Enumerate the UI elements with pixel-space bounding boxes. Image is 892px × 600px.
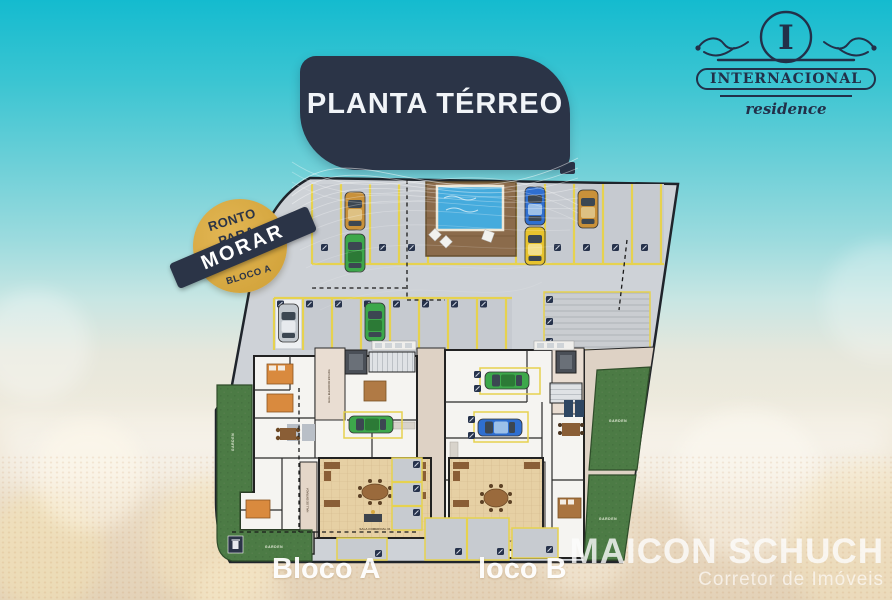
- bed: [364, 381, 386, 401]
- marketing-poster: HALL ELEVADOR ESCADA HALL DE ENTRADA SAL…: [0, 0, 892, 600]
- car-blue: [525, 187, 545, 225]
- bed: [246, 500, 270, 518]
- logo-tagline: residence: [688, 100, 884, 118]
- hall-core-label: HALL ELEVADOR ESCADA: [327, 369, 331, 403]
- brand-logo: I INTERNACIONAL residence: [688, 8, 884, 118]
- car-silver: [279, 304, 299, 342]
- stairs: [369, 352, 415, 372]
- garden-label: GARDEN: [265, 545, 283, 549]
- car-gold: [578, 190, 598, 228]
- car-green: [365, 303, 385, 341]
- garden-label: GARDEN: [609, 419, 627, 423]
- block-b-caption: loco B: [478, 553, 567, 586]
- block-a-caption: Bloco A: [272, 553, 380, 586]
- bed: [564, 400, 573, 417]
- car-yellow: [525, 227, 545, 265]
- car-gold: [345, 192, 365, 230]
- logo-divider: [720, 95, 852, 97]
- bed: [575, 400, 584, 417]
- commercial-a-label: SALA COMERCIAL 01: [359, 527, 391, 531]
- parking-row-middle: [274, 292, 650, 350]
- garden-label: GARDEN: [231, 433, 235, 451]
- logo-monogram: I: [778, 18, 794, 58]
- car-green: [345, 234, 365, 272]
- plan-title-badge: PLANTA TÉRREO: [300, 56, 570, 170]
- car-green: [485, 372, 529, 389]
- reception-desk: [364, 514, 382, 522]
- car-blue: [478, 419, 522, 436]
- car-green: [349, 416, 393, 433]
- promo-badge: RONTO PARA BLOCO A MORAR: [178, 190, 328, 305]
- pool-area: [426, 182, 516, 256]
- garden-label: GARDEN: [599, 517, 617, 521]
- dining-table: [280, 428, 296, 440]
- watermark-title: Corretor de Imóveis: [570, 570, 884, 590]
- logo-name: INTERNACIONAL: [710, 71, 862, 87]
- bed: [267, 394, 293, 412]
- dining-table: [562, 423, 580, 436]
- wardrobe: [302, 424, 315, 441]
- swimming-pool: [437, 186, 503, 230]
- watermark-name: MAICON SCHUCH: [570, 534, 884, 570]
- entry-hall-label: HALL DE ENTRADA: [306, 488, 310, 513]
- plan-title: PLANTA TÉRREO: [300, 88, 570, 121]
- watermark: MAICON SCHUCH Corretor de Imóveis: [570, 534, 884, 590]
- logo-name-box: INTERNACIONAL: [696, 68, 876, 90]
